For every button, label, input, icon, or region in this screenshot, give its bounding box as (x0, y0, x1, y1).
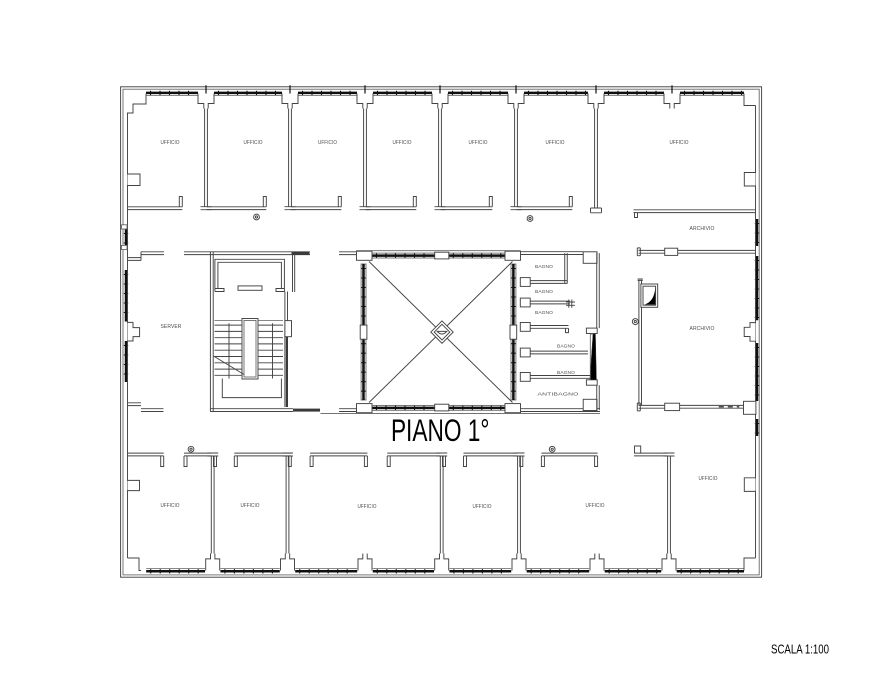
svg-text:UFFICIO: UFFICIO (469, 140, 488, 146)
svg-text:UFFICIO: UFFICIO (393, 140, 412, 146)
svg-text:UFFICIO: UFFICIO (161, 140, 180, 146)
svg-text:BAGNO: BAGNO (535, 264, 553, 270)
svg-text:UFFICIO: UFFICIO (358, 504, 377, 510)
svg-text:UFFICIO: UFFICIO (699, 476, 718, 482)
svg-text:BAGNO: BAGNO (535, 289, 553, 295)
svg-text:SCALA 1:100: SCALA 1:100 (771, 642, 829, 657)
svg-text:PIANO 1°: PIANO 1° (391, 413, 490, 448)
svg-text:ANTIBAGNO: ANTIBAGNO (538, 392, 579, 398)
svg-text:BAGNO: BAGNO (557, 344, 575, 350)
svg-text:BAGNO: BAGNO (535, 310, 553, 316)
svg-text:UFFICIO: UFFICIO (318, 140, 337, 146)
svg-text:UFFICIO: UFFICIO (546, 140, 565, 146)
svg-text:UFFICIO: UFFICIO (244, 140, 263, 146)
svg-text:UFFICIO: UFFICIO (241, 503, 260, 509)
svg-text:UFFICIO: UFFICIO (670, 140, 689, 146)
svg-text:ARCHIVIO: ARCHIVIO (690, 226, 715, 232)
svg-text:SERVER: SERVER (161, 324, 182, 330)
svg-text:ARCHIVIO: ARCHIVIO (690, 326, 715, 332)
svg-text:UFFICIO: UFFICIO (586, 503, 605, 509)
svg-text:UFFICIO: UFFICIO (473, 504, 492, 510)
svg-text:UFFICIO: UFFICIO (161, 503, 180, 509)
